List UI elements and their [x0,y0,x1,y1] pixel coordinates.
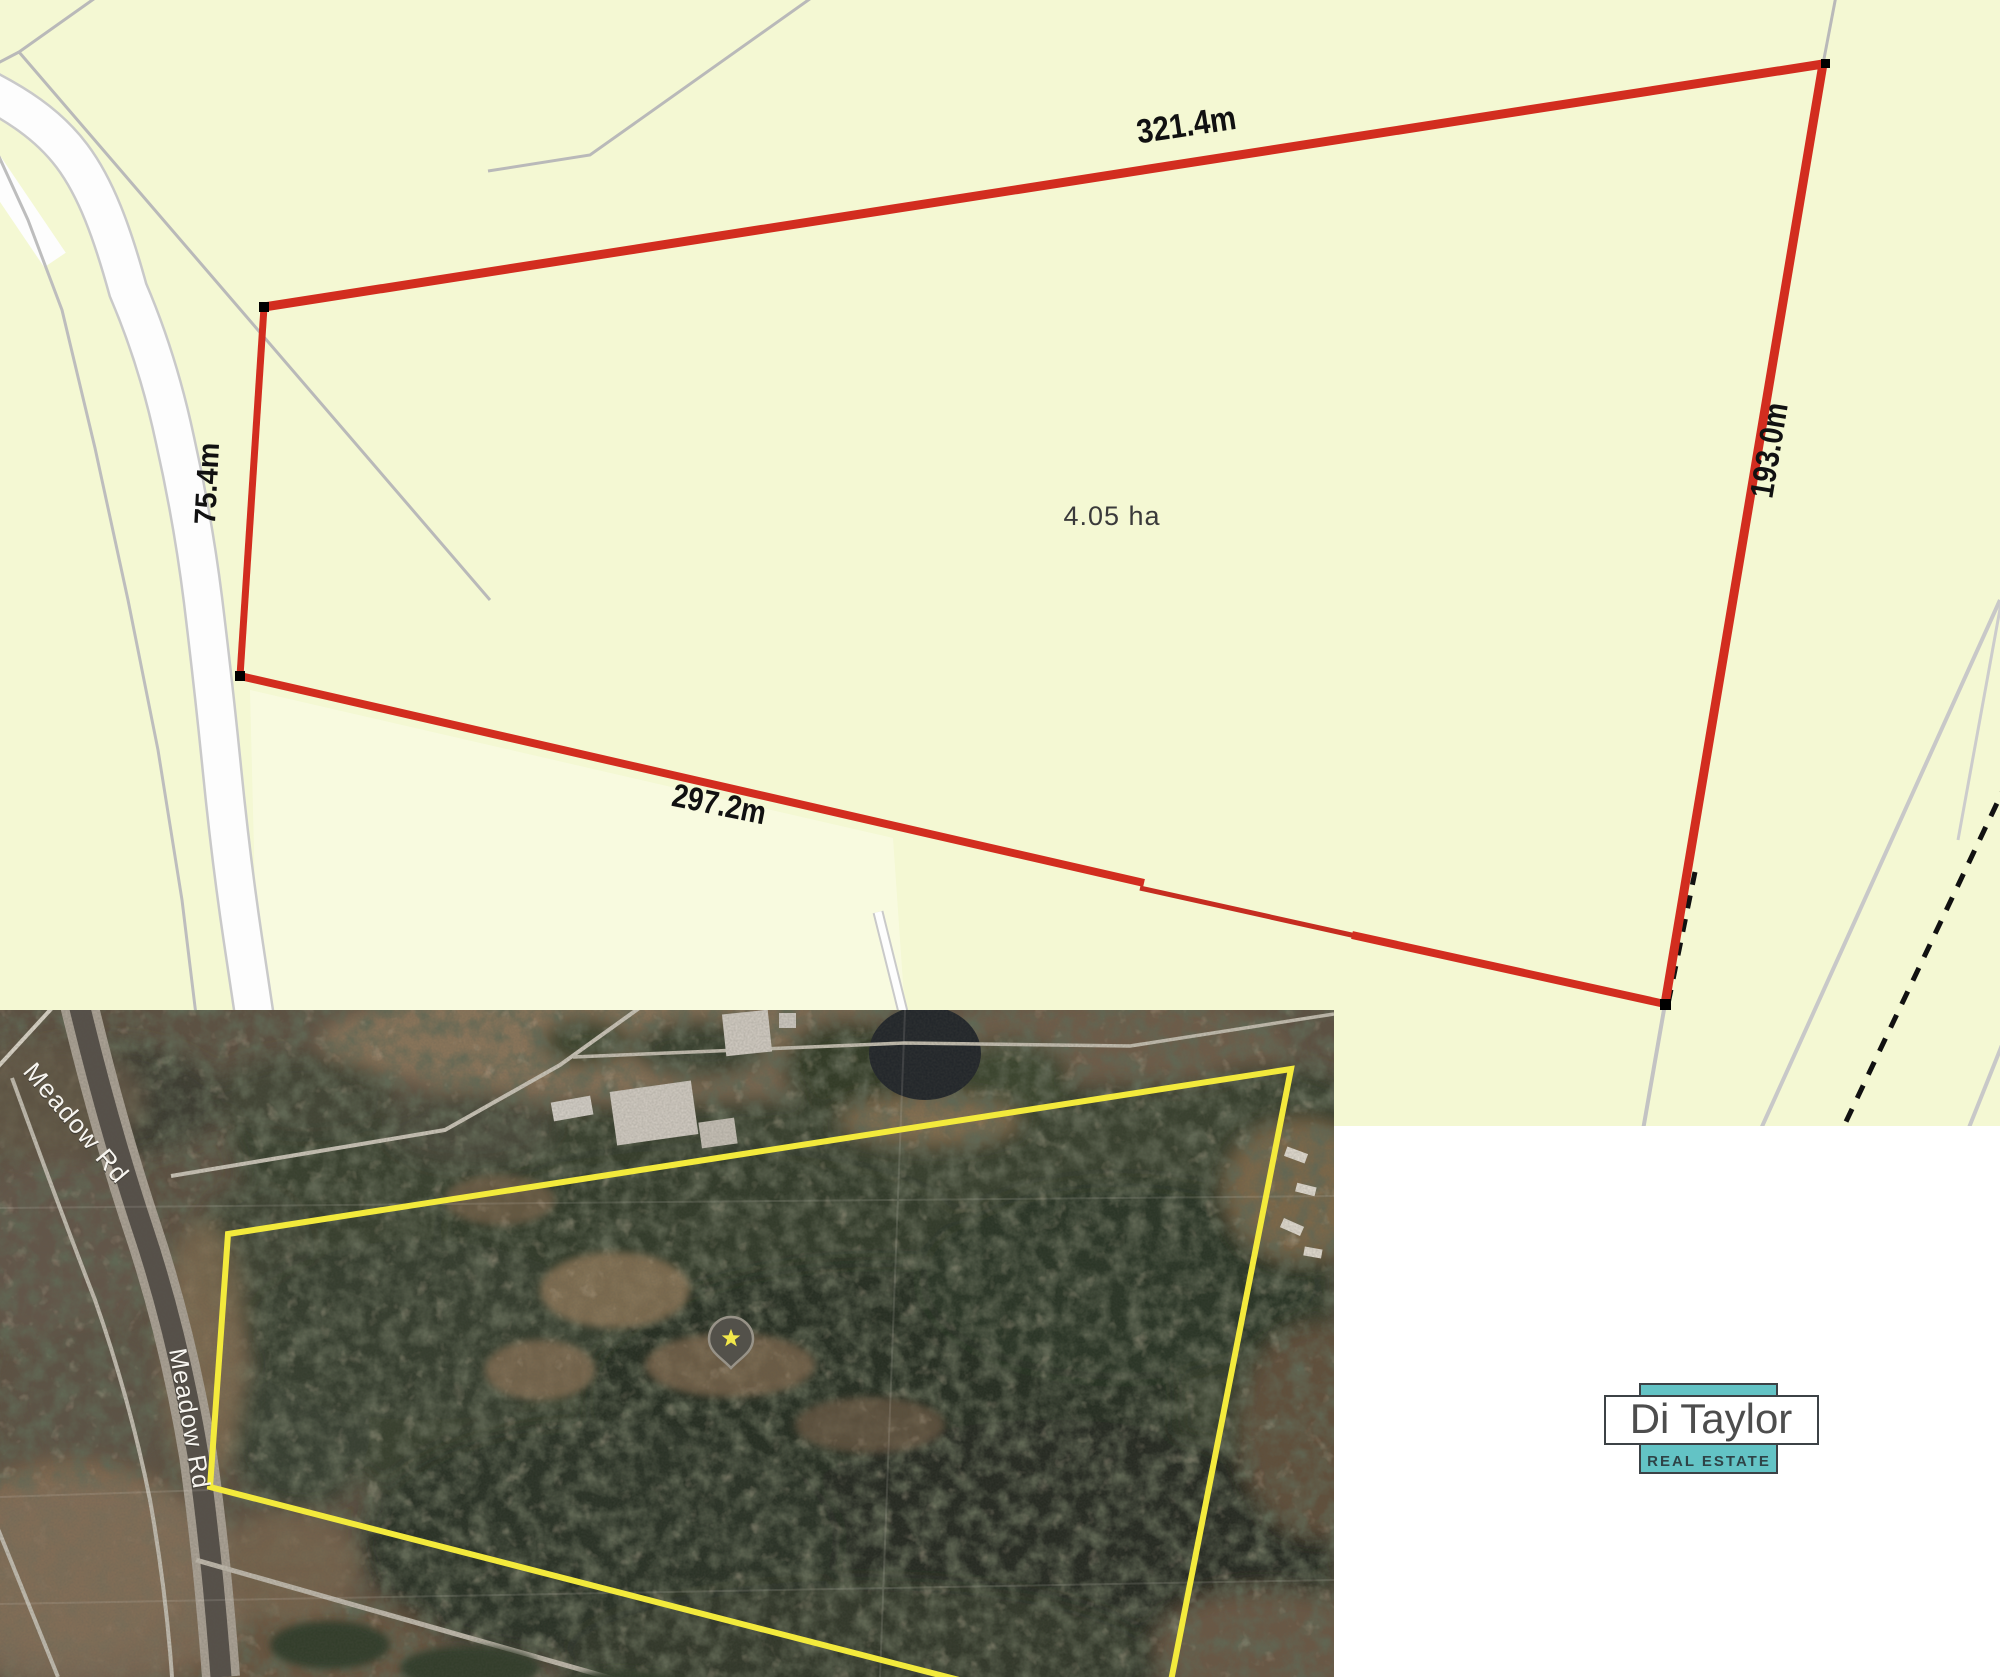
svg-text:Di Taylor: Di Taylor [1630,1395,1793,1442]
svg-text:75.4m: 75.4m [189,442,226,526]
svg-text:REAL ESTATE: REAL ESTATE [1647,1453,1771,1470]
svg-text:4.05 ha: 4.05 ha [1063,501,1160,531]
